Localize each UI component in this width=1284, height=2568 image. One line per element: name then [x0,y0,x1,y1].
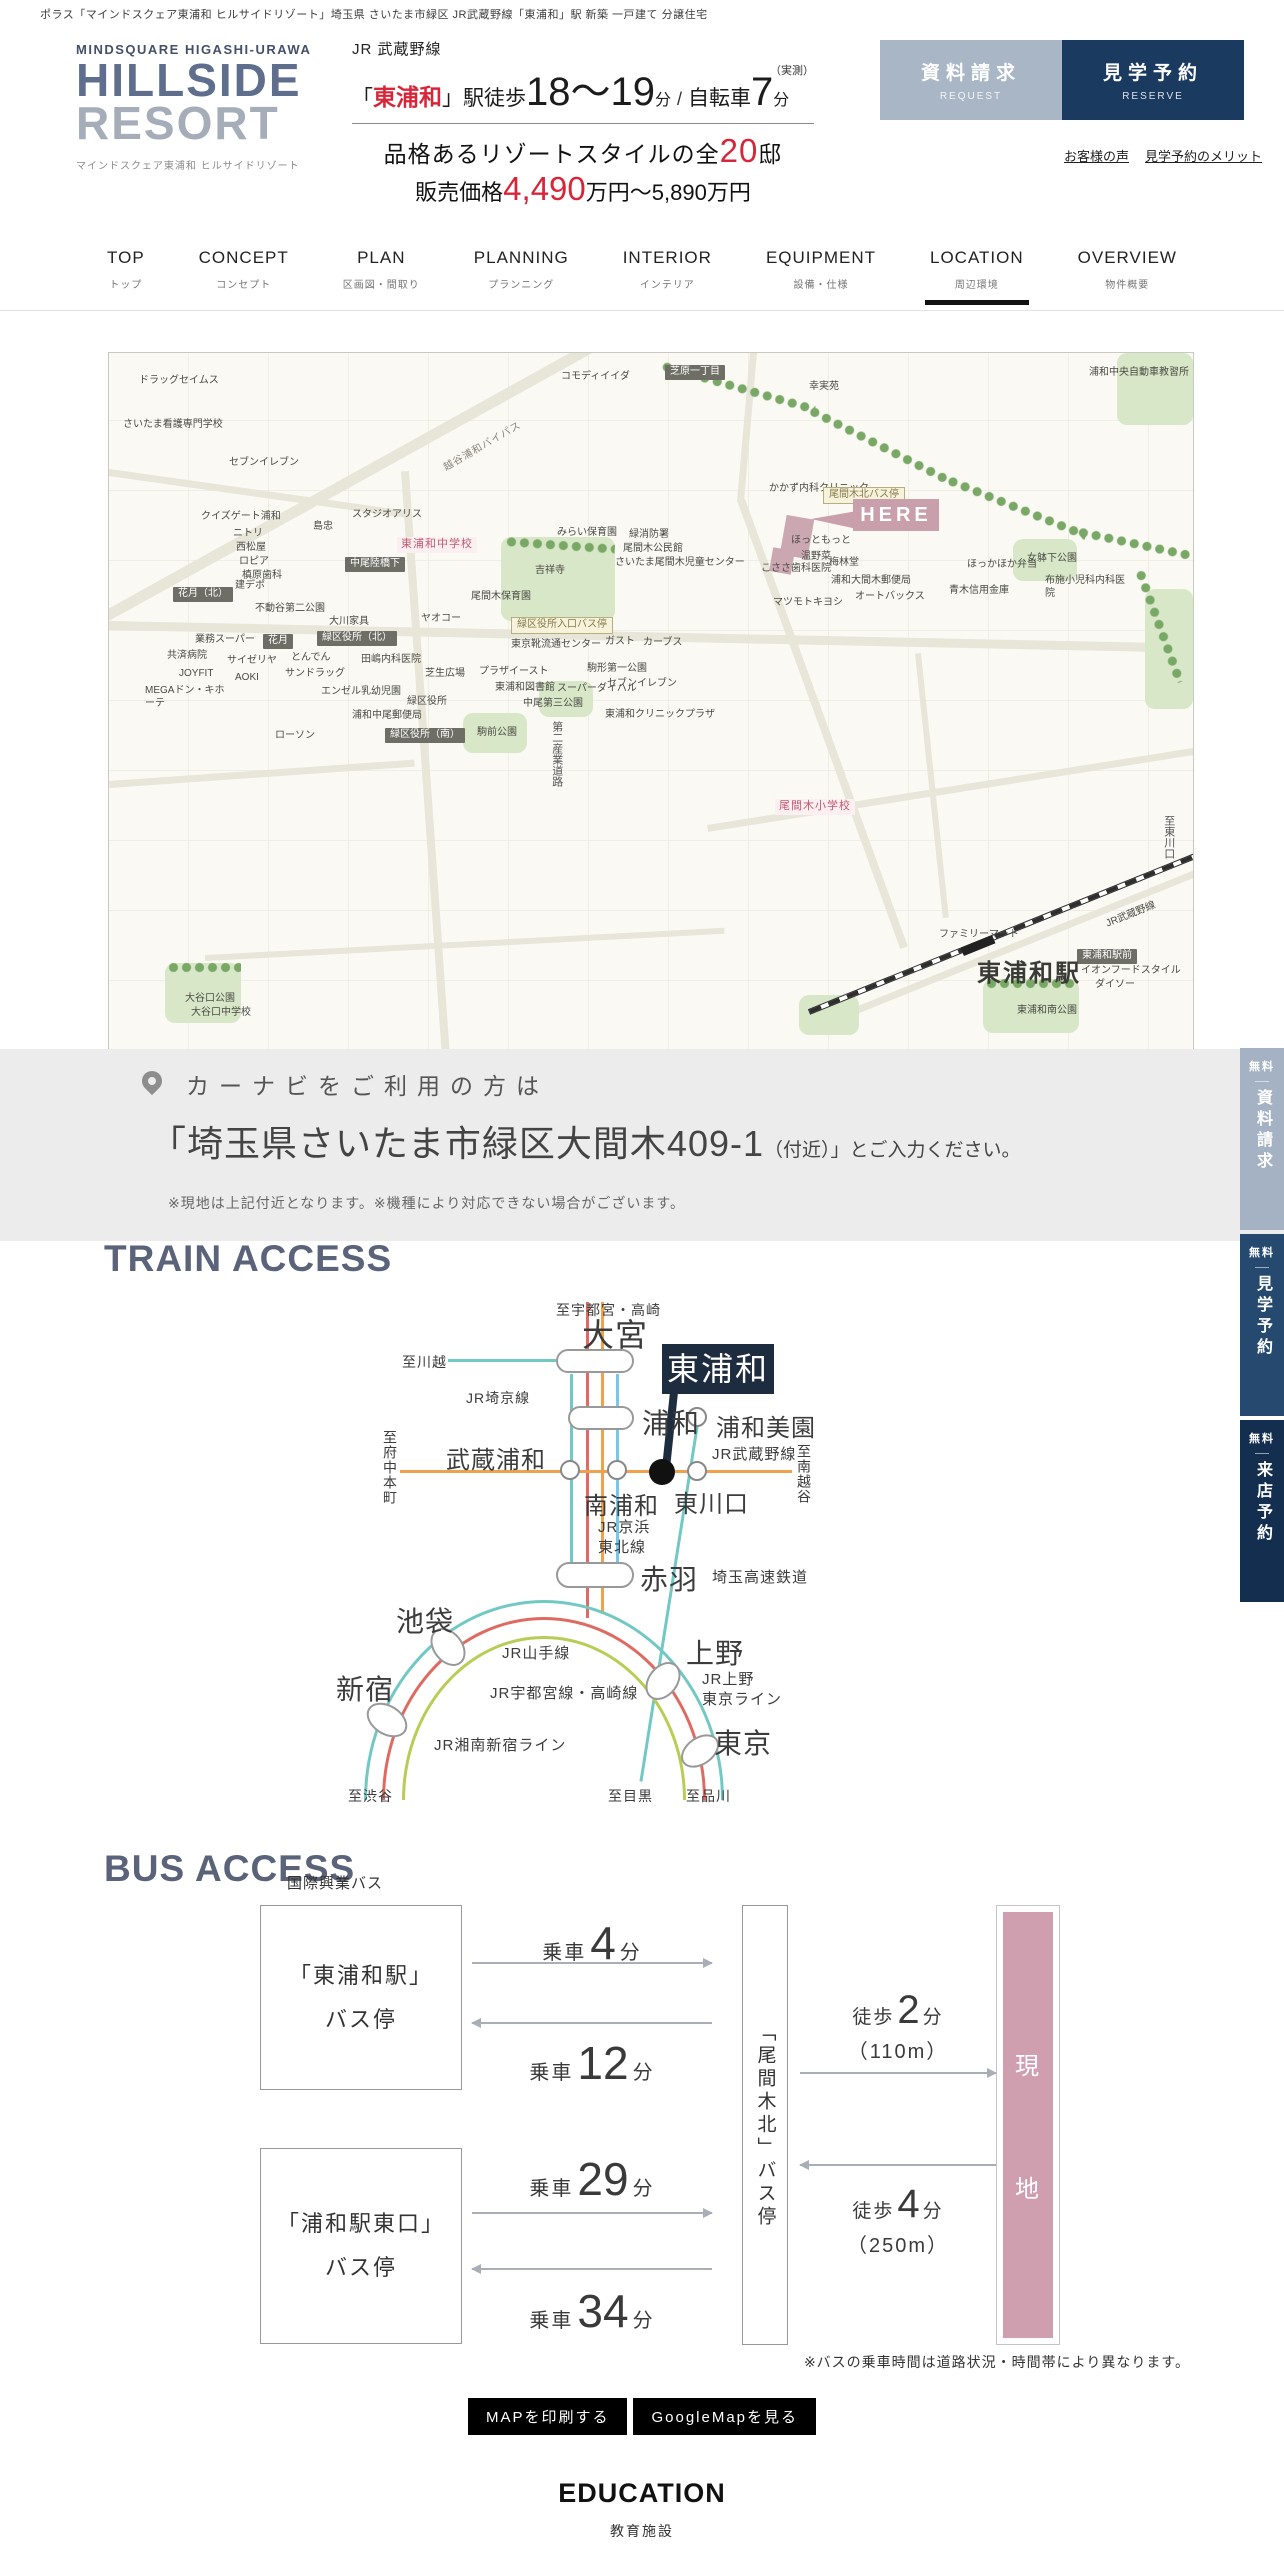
map-label: さいたま看護専門学校 [123,419,223,432]
map-label: 尾間木保育園 [471,591,531,604]
ride-unit: 分 [633,2062,655,2084]
copy-post: 邸 [758,141,782,167]
page: ポラス「マインドスクェア東浦和 ヒルサイドリゾート」埼玉県 さいたま市緑区 JR… [0,0,1284,2568]
area-map: HERE ドラッグセイムスさいたま看護専門学校セブンイレブンコモディイイダ幸実苑… [108,352,1194,1051]
map-label: サンドラッグ [285,668,345,681]
brand-main-2: RESORT [76,100,311,147]
map-label: 尾間木公民館 [623,543,683,556]
walk-time: 徒歩2分 （110m） [800,1988,996,2064]
map-label: 業務スーパー [195,634,255,647]
station-circle-higashikawaguchi [687,1461,707,1481]
map-label: 駒形第一公園 [587,663,647,676]
bus-note: ※バスの乗車時間は道路状況・時間帯により異なります。 [804,2352,1190,2372]
map-label: 女躰下公園 [1027,553,1077,566]
walk-prefix: 徒歩 [852,2201,894,2222]
train-label: JR武蔵野線 [712,1443,796,1464]
station-circle-musashiurawa [560,1460,580,1480]
carnavi-address-note: （付近）」とご入力ください。 [764,1140,1021,1161]
map-label: プラザイースト [479,666,549,679]
arrow-right [472,2212,712,2214]
map-label: 芝生広場 [425,668,465,681]
nav-item-jp: トップ [107,276,145,291]
map-label: 浦和大間木郵便局 [831,575,911,588]
request-button[interactable]: 資料請求 REQUEST [880,40,1062,120]
bus-stop-name: 「浦和駅東口」 [277,2202,445,2246]
request-button-sublabel: REQUEST [940,91,1002,102]
nav-item-en: OVERVIEW [1078,248,1177,268]
site-box-char: 地 [1015,2169,1041,2204]
map-label: 緑区役所 [407,696,447,709]
train-label: 至渋谷 [348,1786,393,1806]
train-label: 上野 [686,1632,744,1672]
map-label: 中尾陸橋下 [345,557,405,572]
measured-note: （実測） [770,62,814,78]
walk-prefix: 徒歩 [852,2007,894,2028]
map-label: さいたま尾間木児童センター [615,557,745,570]
map-label: 緑消防署 [629,529,669,542]
map-label: 東浦和中学校 [397,537,477,553]
site-box-char: 現 [1015,2046,1041,2081]
map-label: ドラッグセイムス [139,375,219,388]
map-label: 吉祥寺 [535,565,565,578]
map-label: ファミリーマート [939,929,1019,942]
train-label: JR埼京線 [466,1388,530,1408]
walk-minutes: 18〜19 [526,59,655,117]
site-box-inner: 現地 [1003,1912,1053,2338]
googlemap-button[interactable]: GoogleMapを見る [633,2398,816,2435]
map-label: 芝原一丁目 [665,365,725,380]
carnavi-note: ※現地は上記付近となります。※機種により対応できない場合がございます。 [168,1193,685,1213]
train-label: 武蔵浦和 [446,1440,546,1475]
train-label: 至府中本町 [380,1430,400,1505]
nav-item[interactable]: EQUIPMENT 設備・仕様 [739,248,903,291]
reserve-button[interactable]: 見学予約 RESERVE [1062,40,1244,120]
divider [352,123,814,124]
slash: / [671,89,688,110]
map-label: ヤオコー [421,613,461,626]
walk-unit: 分 [923,2007,944,2028]
bus-stop-box-higashiurawa: 「東浦和駅」 バス停 [260,1905,462,2090]
site-box: 現地 [996,1905,1060,2345]
map-label: 東浦和駅 [977,959,1081,989]
map-label: スタジオアリス [352,509,422,522]
map-label: こささ歯科医院 [761,563,831,576]
map-label: みらい保育園 [557,527,617,540]
station-name: 東浦和 [373,78,442,112]
bus-stop-box-omamakita: 「尾間木北」バス停 [742,1905,788,2345]
map-label: 大川家具 [329,616,369,629]
tree-line [806,404,954,488]
train-label: 東川口 [674,1484,749,1519]
price-range: 万円〜5,890万円 [586,180,751,205]
road-line [737,352,757,502]
map-label: ロピア [239,556,269,569]
road-line [707,748,1194,832]
reserve-button-sublabel: RESERVE [1122,91,1184,102]
reserve-merit-link[interactable]: 見学予約のメリット [1145,146,1262,165]
train-label: JR上野 [702,1668,754,1689]
map-label: 青木信用金庫 [949,585,1009,598]
arrow-left [800,2164,996,2166]
floating-button[interactable]: 無料 見学予約 [1240,1234,1284,1416]
map-actions: MAPを印刷する GoogleMapを見る [0,2398,1284,2435]
train-label: 東北線 [598,1536,646,1557]
brand-sub: マインドスクェア東浦和 ヒルサイドリゾート [76,157,311,172]
station-dot-higashiurawa [649,1459,675,1485]
bus-stop-name: 「東浦和駅」 [289,1954,433,1998]
map-label: ほっともっと [791,535,851,548]
nav-item[interactable]: PLAN 区画図・間取り [316,248,447,291]
train-line-name: JR 武蔵野線 [352,38,814,59]
catch-copy: 品格あるリゾートスタイルの全20邸 [352,132,814,170]
station-pill-akabane [556,1562,634,1588]
floating-button[interactable]: 無料 来店予約 [1240,1420,1284,1602]
train-label: 池袋 [396,1600,454,1640]
bracket: 「 [352,82,373,112]
nav-item-en: PLAN [343,248,420,268]
nav-item-jp: コンセプト [199,276,289,291]
walk-label: 駅徒歩 [463,82,526,112]
map-label: ガスト [605,636,635,649]
nav-item-en: INTERIOR [623,248,712,268]
train-label: 至南越谷 [794,1444,814,1504]
map-label: 中尾第三公園 [523,698,583,711]
ride-unit: 分 [633,2310,655,2332]
map-label: 島忠 [313,521,333,534]
divider [1255,1081,1269,1082]
map-label: 東浦和クリニックプラザ [605,709,715,722]
brand-logo[interactable]: MINDSQUARE HIGASHI-URAWA HILLSIDE RESORT… [76,42,311,172]
print-map-button[interactable]: MAPを印刷する [468,2398,628,2435]
divider [1255,1267,1269,1268]
nav-item[interactable]: INTERIOR インテリア [596,248,739,291]
map-label: 不動谷第二公園 [255,603,325,616]
train-label: 浦和 [642,1402,700,1442]
ride-unit: 分 [633,2178,655,2200]
tree-line [1076,525,1194,563]
ride-unit: 分 [620,1942,642,1964]
train-label: 埼玉高速鉄道 [712,1566,808,1587]
nav-item-jp: 設備・仕様 [766,276,876,291]
nav-item-jp: 物件概要 [1078,276,1177,291]
free-badge: 無料 [1249,1244,1275,1260]
nav-item[interactable]: TOP トップ [80,248,172,291]
map-label: 大谷口公園 [185,993,235,1006]
road-line [915,653,949,918]
bike-label: 自転車 [688,82,751,112]
bracket: 」 [442,82,463,112]
walk-distance: （110m） [800,2035,996,2064]
map-label: サイゼリヤ [227,655,277,668]
nav-item-en: LOCATION [930,248,1024,268]
nav-item[interactable]: CONCEPT コンセプト [172,248,316,291]
map-label: 至東川口 [1161,815,1175,859]
walk-minutes: 4 [894,2182,922,2226]
education-heading-jp: 教育施設 [0,2521,1284,2541]
map-pin-icon [138,1067,166,1095]
carnavi-title: カーナビをご利用の方は [186,1067,549,1101]
price-min: 4,490 [503,170,586,207]
nav-item-en: EQUIPMENT [766,248,876,268]
map-label: AOKI [235,672,259,685]
walk-unit: 分 [923,2201,944,2222]
train-label: 大宮 [582,1310,648,1356]
map-label: イオンフードスタイル [1081,965,1181,978]
ride-minutes: 34 [573,2285,632,2337]
ride-time: 乗車12分 [472,2036,712,2090]
map-label: 浦和中央自動車教習所 [1089,367,1193,380]
map-label: MEGAドン・キホーテ [145,685,231,710]
arrow-left [472,2022,712,2024]
price-label: 販売価格 [415,180,503,205]
carnavi-section: カーナビをご利用の方は 「埼玉県さいたま市緑区大間木409-1（付近）」とご入力… [0,1049,1284,1241]
free-badge: 無料 [1249,1058,1275,1074]
ride-time: 乗車29分 [472,2152,712,2206]
map-label: 東浦和図書館 [495,682,555,695]
reserve-button-label: 見学予約 [1103,58,1203,85]
park-shape [1117,353,1193,425]
map-label: 花月 [263,634,293,649]
free-badge: 無料 [1249,1430,1275,1446]
train-access-heading: TRAIN ACCESS [104,1238,392,1280]
train-label: 新宿 [336,1668,394,1708]
ride-minutes: 29 [573,2153,632,2205]
floating-button-label: 見学予約 [1250,1275,1274,1359]
map-label: セブンイレブン [607,678,677,691]
train-label: JR宇都宮線・高崎線 [490,1682,638,1703]
map-label: 緑区役所入口バス停 [511,617,613,634]
map-label: セブンイレブン [229,457,299,470]
ride-time: 乗車4分 [472,1916,712,1970]
nav-item[interactable]: LOCATION 周辺環境 [903,248,1051,291]
train-label: 浦和美園 [716,1408,816,1443]
map-label: 幸実苑 [809,381,839,394]
train-label: 至品川 [686,1786,731,1806]
nav-item[interactable]: PLANNING プランニング [447,248,596,291]
track-line [570,1374,573,1588]
train-label: JR山手線 [502,1642,570,1663]
map-label: JOYFIT [179,668,213,681]
education-section-heading: EDUCATION 教育施設 [0,2478,1284,2541]
request-button-label: 資料請求 [921,58,1021,85]
here-pointer [811,511,857,529]
map-label: マツモトキヨシ [773,597,843,610]
map-label: 東京靴流通センター [511,639,601,652]
bus-stop-box-urawaeki: 「浦和駅東口」 バス停 [260,2148,462,2344]
ride-prefix: 乗車 [542,1942,586,1964]
train-label: 東京 [714,1722,772,1762]
train-label: 至目黒 [608,1786,653,1806]
map-label: クイズゲート浦和 [201,511,281,524]
minutes-unit: 分 [773,86,789,110]
nav-item-jp: 周辺環境 [930,276,1024,291]
tree-line [167,961,241,974]
floating-button-label: 資料請求 [1250,1089,1274,1173]
map-label: 浦和中尾郵便局 [352,710,422,723]
nav-item-en: TOP [107,248,145,268]
station-pill-urawa [568,1406,634,1430]
bus-stop-name: 「尾間木北」バス停 [752,2022,779,2229]
site-description: ポラス「マインドスクェア東浦和 ヒルサイドリゾート」埼玉県 さいたま市緑区 JR… [40,6,708,22]
train-label: 至川越 [402,1352,447,1372]
map-label: 尾間木小学校 [775,799,855,815]
map-label: エンゼル乳幼児園 [321,686,401,699]
map-label: 布施小児科内科医院 [1045,575,1129,600]
nav-divider [0,310,1284,311]
arrow-left [472,2268,712,2270]
map-label: 東浦和南公園 [1017,1005,1077,1018]
nav-item[interactable]: OVERVIEW 物件概要 [1051,248,1204,291]
map-label: ダイソー [1095,979,1135,992]
higashiurawa-callout: 東浦和 [662,1344,774,1394]
station-access-line: 「東浦和」駅徒歩18〜19分/自転車7分 [352,59,814,117]
nav-item-en: PLANNING [474,248,569,268]
nav-item-jp: インテリア [623,276,712,291]
map-label: 大谷口中学校 [191,1007,251,1020]
map-label: ローソン [275,730,315,743]
floating-button[interactable]: 無料 資料請求 [1240,1048,1284,1230]
walk-time: 徒歩4分 （250m） [800,2182,996,2258]
train-label: JR湘南新宿ライン [434,1734,566,1755]
ride-prefix: 乗車 [529,2178,573,2200]
ride-prefix: 乗車 [529,2062,573,2084]
header-links: お客様の声 見学予約のメリット [1064,146,1262,165]
map-label: コモディイイダ [561,371,630,384]
minutes-unit: 分 [655,86,671,110]
map-label: 駒前公園 [477,727,517,740]
education-heading-en: EDUCATION [0,2478,1284,2509]
map-label: 緑区役所（北） [317,631,397,646]
arrow-right [800,2072,996,2074]
map-label: カーブス [643,637,682,650]
map-label: 田嶋内科医院 [361,654,421,667]
divider [1255,1453,1269,1454]
map-label: とんでん [291,652,331,665]
bus-stop-suffix: バス停 [325,2246,397,2290]
map-label: 温野菜 [801,551,831,564]
carnavi-address-main: 「埼玉県さいたま市緑区大間木409-1 [150,1123,764,1164]
price-line: 販売価格4,490万円〜5,890万円 [352,170,814,208]
ride-minutes: 12 [573,2037,632,2089]
unit-count: 20 [720,132,759,169]
walk-distance: （250m） [800,2229,996,2258]
ride-minutes: 4 [586,1917,620,1969]
map-label: 第二産業道路 [549,721,563,787]
main-nav: TOP トップ CONCEPT コンセプト PLAN 区画図・間取り PLANN… [0,248,1284,291]
map-label: 花月（北） [173,587,233,602]
train-label: 赤羽 [640,1558,698,1598]
nav-item-jp: プランニング [474,276,569,291]
copy-pre: 品格あるリゾートスタイルの全 [384,141,720,167]
map-label: ニトリ [233,528,263,541]
here-badge: HERE [853,499,939,531]
map-label: 共済病院 [167,650,207,663]
floating-button-label: 来店予約 [1250,1461,1274,1545]
road-line [109,760,415,788]
map-label: 緑区役所（南） [385,728,465,743]
ride-time: 乗車34分 [472,2284,712,2338]
map-label: 西松屋 [236,542,266,555]
header-catch: JR 武蔵野線 「東浦和」駅徒歩18〜19分/自転車7分 （実測） 品格あるリゾ… [352,38,814,208]
tree-line [945,473,1089,541]
map-label: 梅林堂 [829,557,859,570]
road-line [205,928,725,961]
nav-item-jp: 区画図・間取り [343,276,420,291]
train-label: JR京浜 [598,1516,650,1537]
carnavi-address: 「埼玉県さいたま市緑区大間木409-1（付近）」とご入力ください。 [150,1115,1021,1167]
map-label: 建デポ [235,580,265,593]
station-circle-minamiurawa [607,1460,627,1480]
train-label: 東京ライン [702,1688,782,1709]
ride-prefix: 乗車 [529,2310,573,2332]
track-line [448,1359,558,1362]
map-label: オートバックス [855,591,925,604]
walk-minutes: 2 [894,1988,922,2032]
nav-item-en: CONCEPT [199,248,289,268]
bus-operator: 国際興業バス [287,1872,383,1893]
bus-stop-suffix: バス停 [325,1998,397,2042]
customer-voice-link[interactable]: お客様の声 [1064,146,1129,165]
map-label: 東浦和駅前 [1077,949,1137,964]
